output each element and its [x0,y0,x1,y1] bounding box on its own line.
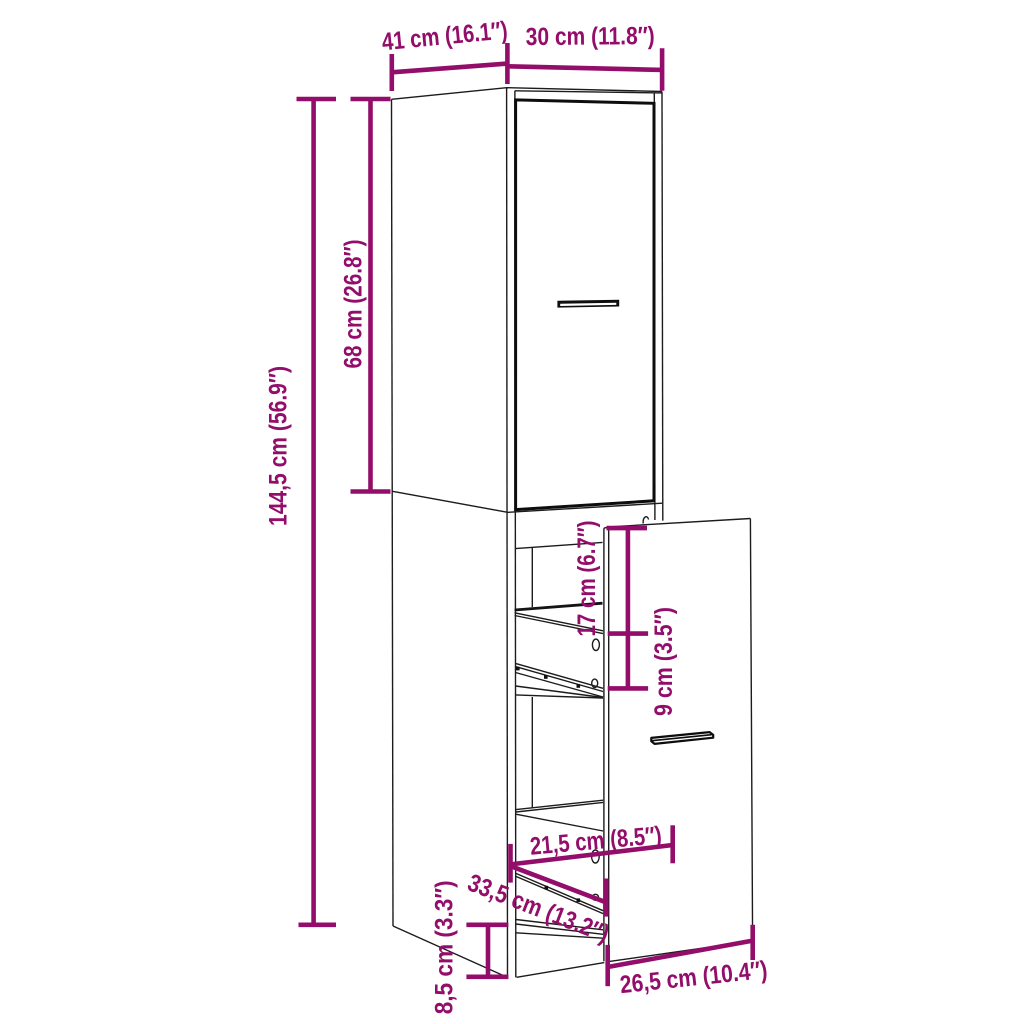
svg-text:68 cm (26.8″): 68 cm (26.8″) [340,240,368,369]
svg-text:9 cm (3.5″): 9 cm (3.5″) [650,607,678,716]
svg-text:8,5 cm (3.3″): 8,5 cm (3.3″) [431,880,459,1014]
svg-text:17 cm (6.7″): 17 cm (6.7″) [573,521,601,637]
svg-text:144,5 cm (56.9″): 144,5 cm (56.9″) [265,366,293,526]
svg-text:30 cm (11.8″): 30 cm (11.8″) [526,22,655,51]
